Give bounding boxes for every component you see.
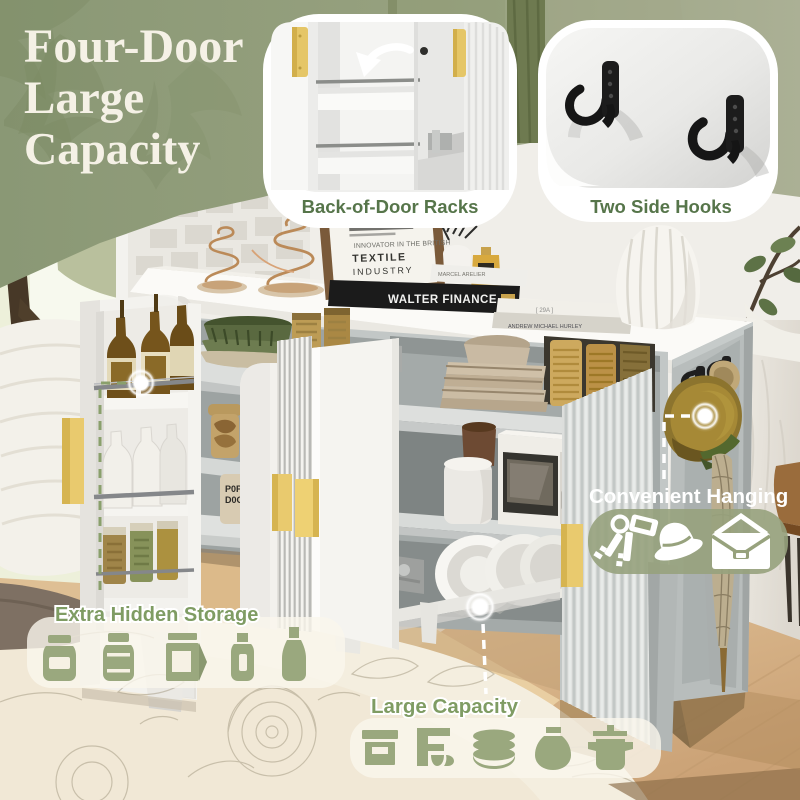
- svg-text:Capacity: Capacity: [24, 123, 200, 174]
- svg-text:MARCEL ARELIER: MARCEL ARELIER: [438, 272, 486, 278]
- svg-text:Convenient Hanging: Convenient Hanging: [589, 485, 788, 508]
- svg-text:ANDREW MICHAEL HURLEY: ANDREW MICHAEL HURLEY: [508, 324, 582, 330]
- svg-text:P0P: P0P: [225, 484, 242, 494]
- svg-text:WALTER FINANCE: WALTER FINANCE: [388, 294, 497, 306]
- svg-text:Two Side Hooks: Two Side Hooks: [590, 196, 732, 217]
- svg-text:[ 29A ]: [ 29A ]: [536, 308, 553, 314]
- svg-text:Four-Door: Four-Door: [24, 20, 244, 73]
- svg-text:TEXTILE: TEXTILE: [352, 251, 407, 265]
- svg-text:Large Capacity: Large Capacity: [371, 695, 519, 718]
- svg-text:Back-of-Door Racks: Back-of-Door Racks: [302, 196, 479, 217]
- svg-text:INDUSTRY: INDUSTRY: [353, 265, 414, 277]
- svg-text:Large: Large: [24, 72, 144, 124]
- svg-text:Extra Hidden Storage: Extra Hidden Storage: [55, 604, 258, 626]
